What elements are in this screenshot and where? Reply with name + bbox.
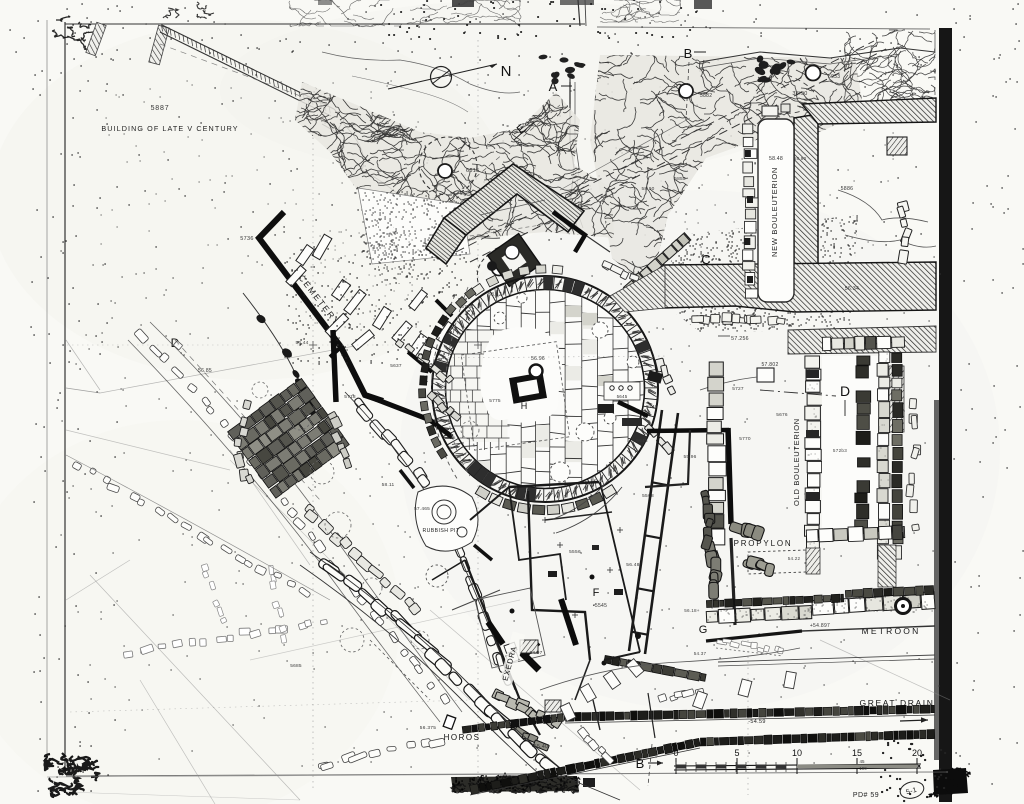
svg-text:572b3: 572b3 [833, 448, 847, 453]
svg-text:5676: 5676 [776, 412, 788, 418]
svg-text:F: F [593, 587, 600, 599]
svg-text:G: G [699, 624, 708, 636]
svg-text:H: H [521, 401, 528, 411]
svg-text:57.465: 57.465 [414, 506, 430, 512]
svg-text:5736: 5736 [240, 236, 253, 242]
svg-text:5933: 5933 [828, 74, 840, 80]
svg-text:38.90: 38.90 [792, 91, 807, 97]
svg-text:5556: 5556 [569, 549, 581, 555]
svg-text:PROPYLON: PROPYLON [734, 539, 793, 548]
svg-text:54.22: 54.22 [788, 556, 801, 561]
svg-text:58.11: 58.11 [382, 482, 395, 488]
svg-text:5855: 5855 [674, 176, 686, 182]
svg-text:56.18+: 56.18+ [684, 608, 699, 613]
svg-text:•5545: •5545 [593, 603, 607, 609]
svg-text:56.34: 56.34 [845, 286, 859, 292]
svg-text:OLD BOULEUTERION: OLD BOULEUTERION [792, 418, 801, 506]
svg-text:5727: 5727 [732, 386, 744, 392]
svg-text:5749: 5749 [646, 404, 658, 410]
svg-text:-55.40: -55.40 [532, 744, 549, 750]
svg-text:57.256: 57.256 [731, 336, 749, 342]
svg-text:HOROS: HOROS [444, 733, 481, 742]
svg-text:N: N [501, 63, 512, 80]
svg-text:58.12: 58.12 [488, 292, 502, 298]
svg-text:54.97: 54.97 [529, 650, 542, 656]
svg-text:55.96: 55.96 [683, 454, 696, 460]
svg-text:54.37: 54.37 [694, 651, 707, 656]
svg-text:5887: 5887 [151, 105, 170, 112]
svg-text:NEW BOULEUTERION: NEW BOULEUTERION [770, 167, 779, 257]
svg-text:5685: 5685 [290, 663, 302, 669]
svg-text:56.375: 56.375 [420, 725, 437, 731]
svg-text:5645: 5645 [617, 394, 628, 399]
svg-text:45: 45 [859, 759, 865, 764]
svg-text:5886: 5886 [841, 186, 854, 192]
svg-text:5882: 5882 [700, 93, 712, 99]
svg-text:5718: 5718 [344, 394, 356, 400]
svg-text:5568: 5568 [642, 493, 654, 499]
svg-text:+54.897: +54.897 [810, 623, 830, 629]
svg-text:6615: 6615 [466, 168, 479, 174]
svg-text:5637: 5637 [390, 363, 402, 369]
svg-text:B: B [684, 46, 693, 61]
svg-text:BUILDING OF LATE V CENTURY: BUILDING OF LATE V CENTURY [101, 124, 238, 133]
svg-text:58.90: 58.90 [794, 156, 807, 161]
svg-text:RUBBISH PIT: RUBBISH PIT [423, 528, 460, 534]
svg-text:5: 5 [734, 748, 739, 758]
svg-text:20: 20 [912, 748, 922, 758]
svg-text:5645: 5645 [636, 438, 648, 444]
svg-text:57.802: 57.802 [761, 362, 778, 368]
svg-text:0: 0 [673, 748, 678, 758]
svg-text:56.85: 56.85 [198, 368, 212, 374]
svg-text:5775: 5775 [489, 398, 501, 404]
svg-text:199: 199 [859, 766, 867, 771]
svg-text:15: 15 [852, 748, 862, 758]
svg-text:D: D [840, 383, 850, 399]
svg-text:10: 10 [792, 748, 802, 758]
svg-text:58.90: 58.90 [641, 186, 654, 192]
svg-text:5770: 5770 [739, 436, 751, 442]
svg-text:5778: 5778 [461, 304, 473, 310]
svg-text:56.44: 56.44 [295, 340, 308, 346]
svg-text:56.48: 56.48 [626, 562, 640, 568]
svg-text:-54.59: -54.59 [748, 719, 765, 725]
svg-text:PD# 59: PD# 59 [853, 792, 879, 799]
svg-text:58.48: 58.48 [769, 156, 783, 162]
